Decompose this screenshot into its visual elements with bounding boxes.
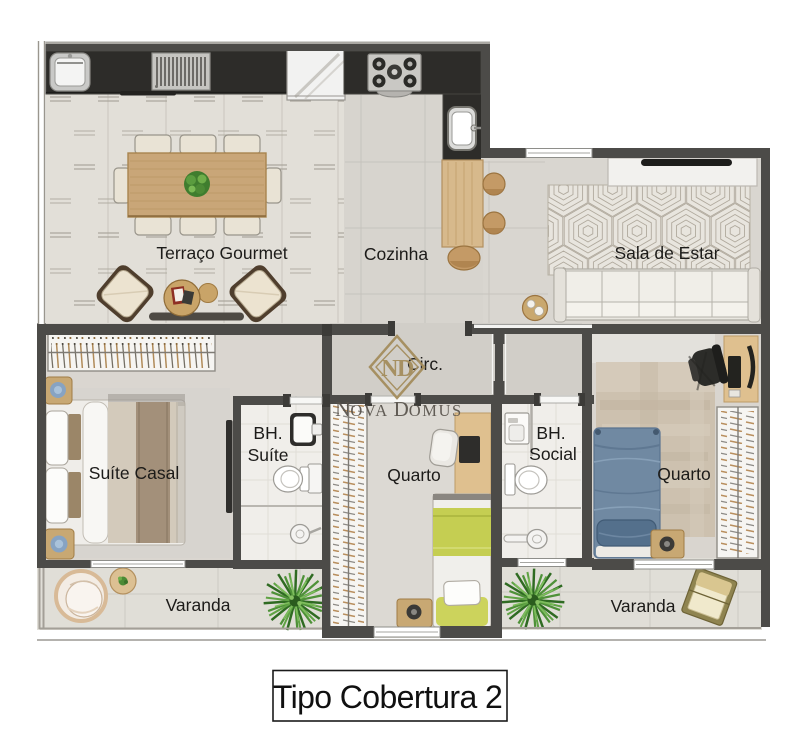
svg-text:BH.: BH. xyxy=(253,423,282,443)
svg-text:Quarto: Quarto xyxy=(657,464,711,484)
svg-text:BH.: BH. xyxy=(536,423,565,443)
svg-text:Tipo Cobertura 2: Tipo Cobertura 2 xyxy=(273,679,502,715)
svg-text:ND: ND xyxy=(381,356,414,382)
svg-text:Suíte: Suíte xyxy=(248,445,289,465)
svg-text:Cozinha: Cozinha xyxy=(364,244,428,264)
svg-text:Quarto: Quarto xyxy=(387,465,441,485)
svg-text:NOVA DOMUS: NOVA DOMUS xyxy=(335,397,463,421)
svg-text:Suíte Casal: Suíte Casal xyxy=(89,463,179,483)
svg-text:Varanda: Varanda xyxy=(166,595,231,615)
svg-text:Social: Social xyxy=(529,444,577,464)
svg-text:Varanda: Varanda xyxy=(611,596,676,616)
svg-text:Sala de Estar: Sala de Estar xyxy=(614,243,719,263)
svg-text:Terraço Gourmet: Terraço Gourmet xyxy=(156,243,287,263)
